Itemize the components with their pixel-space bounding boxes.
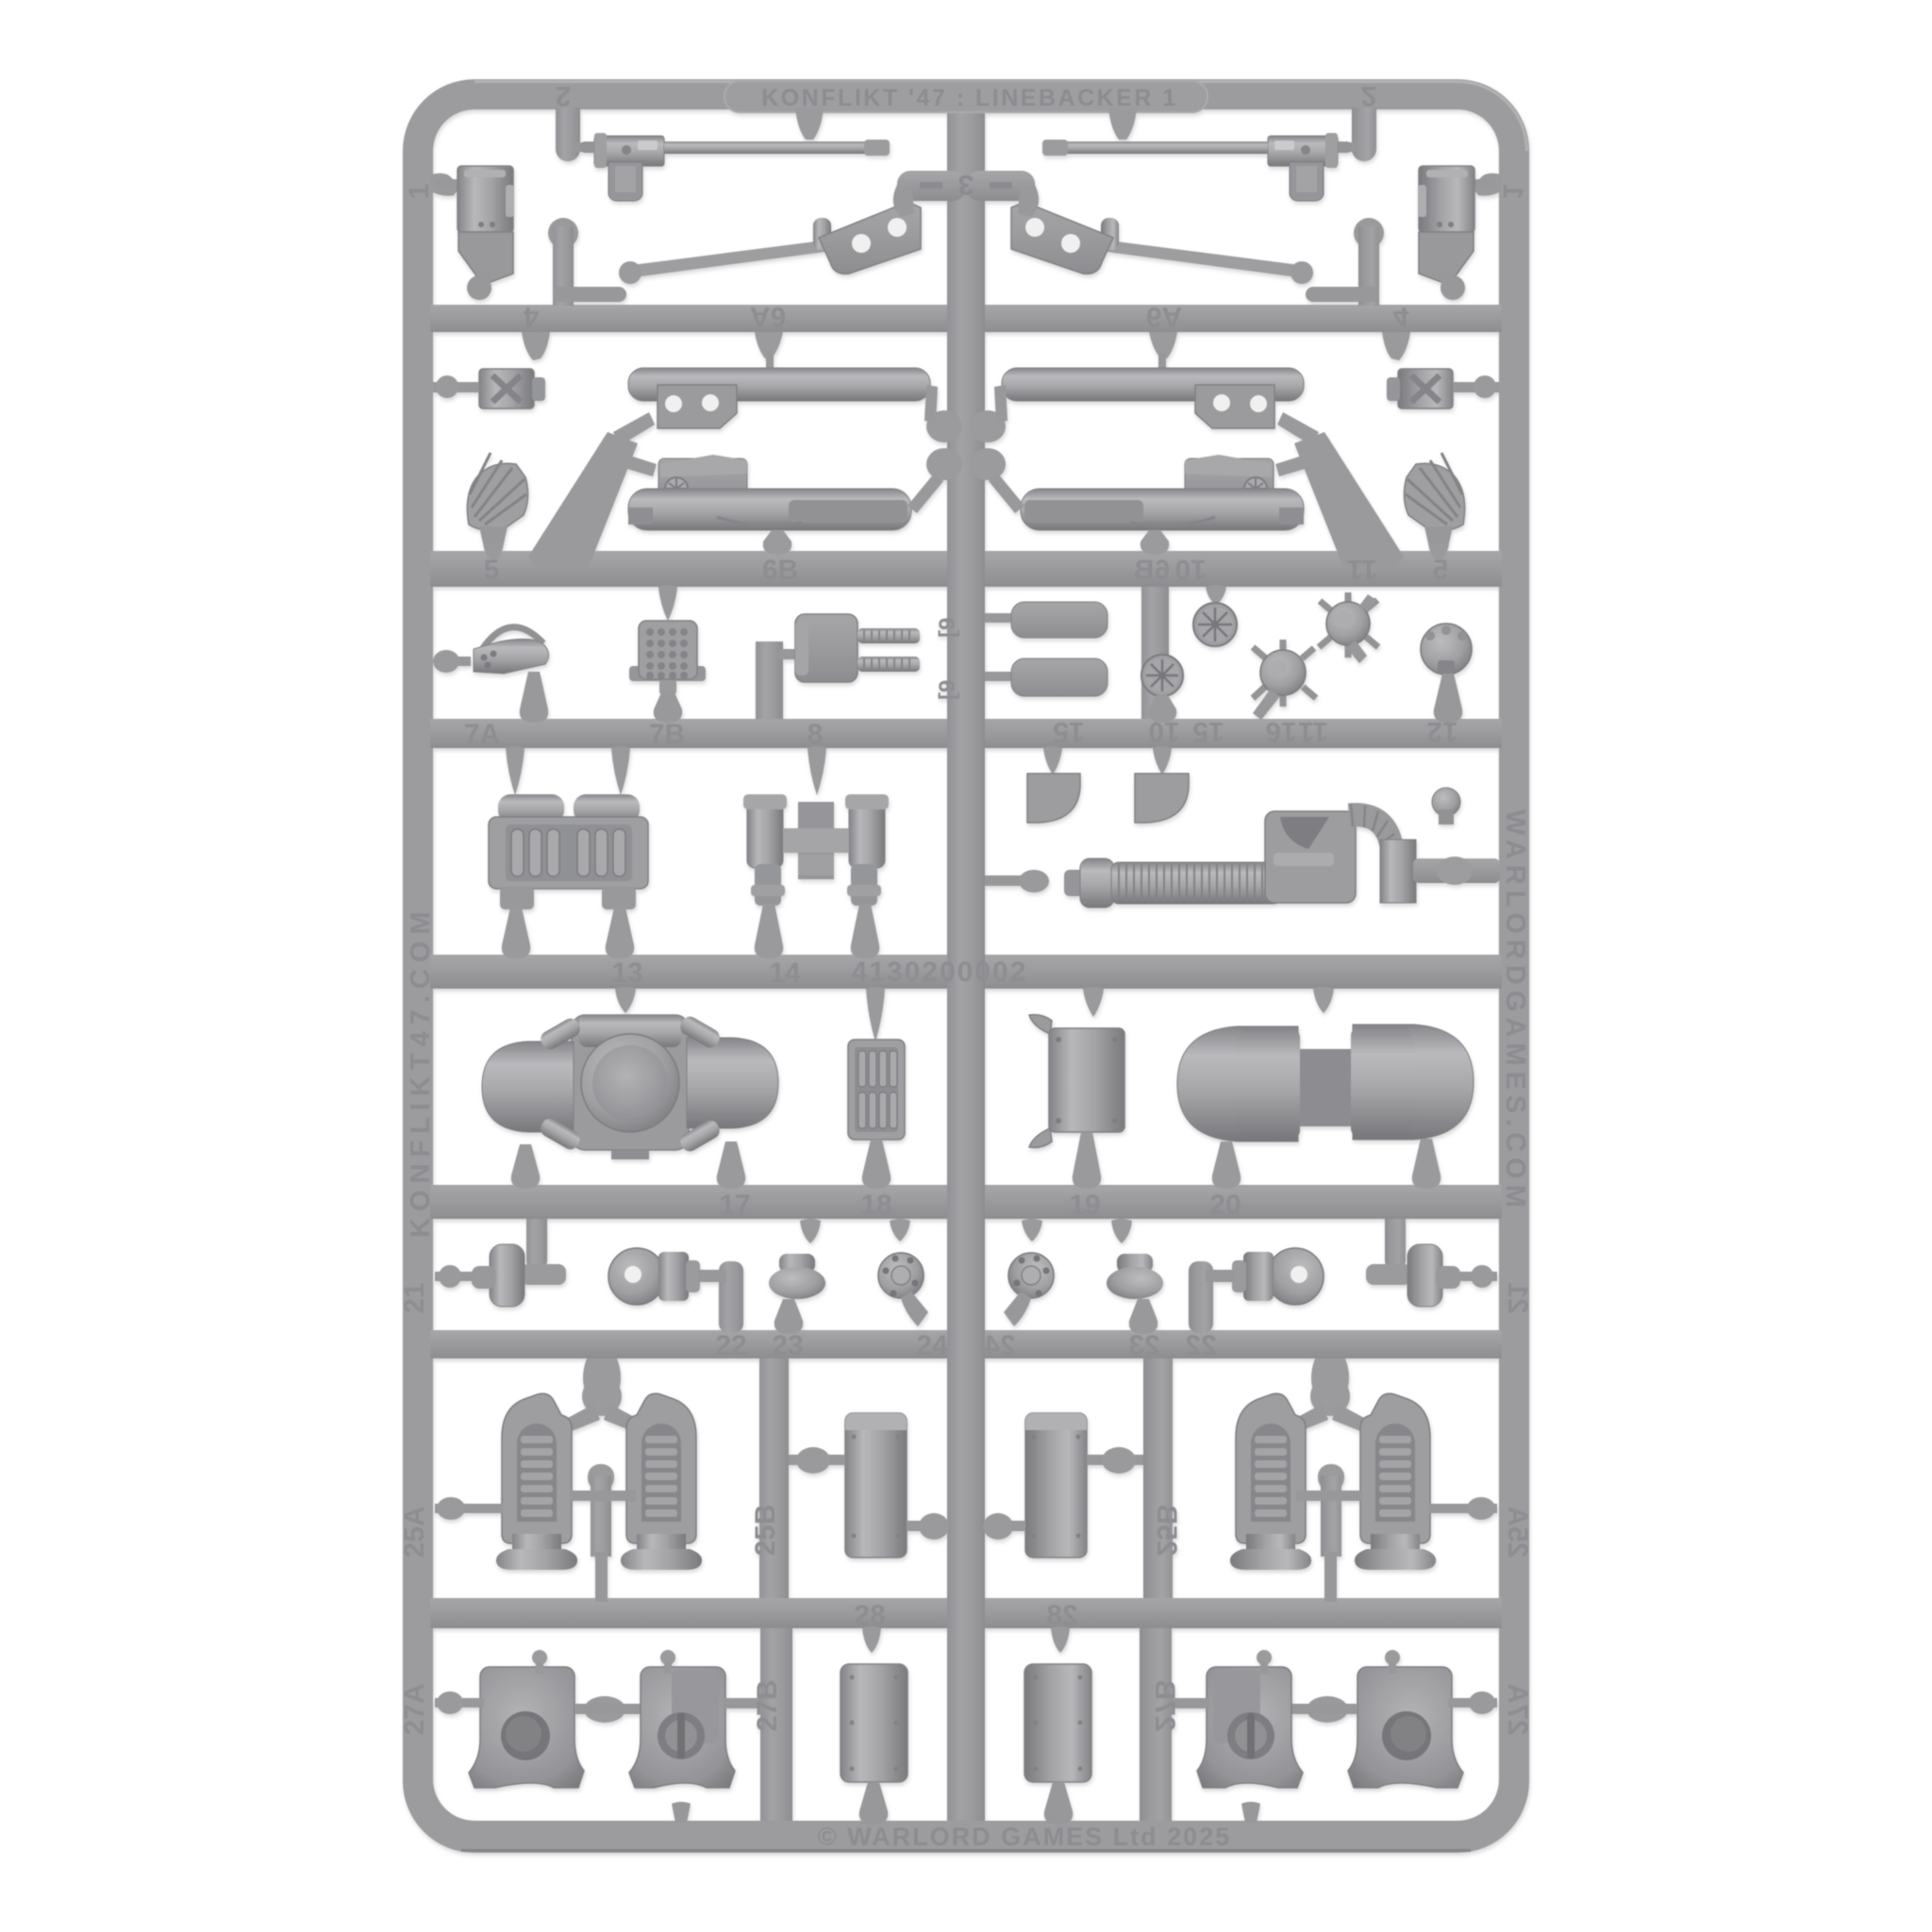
- svg-text:5: 5: [484, 555, 500, 586]
- svg-text:© WARLORD GAMES Ltd 2025: © WARLORD GAMES Ltd 2025: [818, 1823, 1231, 1851]
- svg-text:7A: 7A: [464, 719, 500, 750]
- svg-text:4: 4: [523, 301, 539, 332]
- svg-text:27A: 27A: [399, 1683, 430, 1735]
- svg-text:24: 24: [916, 1330, 948, 1361]
- svg-text:15: 15: [1192, 716, 1224, 747]
- svg-text:1: 1: [404, 184, 435, 200]
- svg-text:17: 17: [719, 1190, 750, 1221]
- svg-text:3: 3: [958, 169, 974, 200]
- svg-text:23: 23: [772, 1330, 803, 1361]
- svg-text:19: 19: [1069, 1190, 1100, 1221]
- svg-text:14: 14: [769, 958, 801, 989]
- svg-text:WARLORDGAMES.COM: WARLORDGAMES.COM: [1500, 809, 1530, 1213]
- svg-text:2: 2: [556, 80, 572, 111]
- svg-text:18: 18: [860, 1190, 891, 1221]
- svg-text:10: 10: [1148, 716, 1179, 747]
- svg-text:13: 13: [611, 958, 642, 989]
- svg-text:KONFLIKT '47 : LINEBACKER 1: KONFLIKT '47 : LINEBACKER 1: [761, 85, 1178, 111]
- svg-text:10: 10: [1174, 554, 1206, 585]
- svg-text:21: 21: [399, 1282, 430, 1313]
- svg-text:7B: 7B: [649, 719, 685, 750]
- svg-text:22: 22: [715, 1330, 746, 1361]
- svg-text:4130200002: 4130200002: [852, 957, 1028, 988]
- svg-text:12: 12: [1426, 716, 1457, 747]
- svg-text:6B: 6B: [762, 555, 798, 586]
- svg-text:8: 8: [808, 719, 824, 750]
- svg-text:[9: [9: [935, 618, 960, 638]
- svg-text:11: 11: [1298, 716, 1328, 747]
- svg-text:6A: 6A: [750, 301, 786, 332]
- svg-text:25B: 25B: [750, 1504, 781, 1556]
- svg-text:16: 16: [1265, 716, 1296, 747]
- svg-text:KONFLIKT47.COM: KONFLIKT47.COM: [406, 905, 436, 1238]
- svg-text:20: 20: [1209, 1190, 1241, 1221]
- svg-text:28: 28: [854, 1600, 885, 1631]
- svg-text:15: 15: [1053, 716, 1084, 747]
- svg-text:25A: 25A: [399, 1506, 430, 1557]
- svg-text:[9: [9: [935, 680, 960, 700]
- svg-text:27B: 27B: [752, 1679, 783, 1731]
- svg-text:11: 11: [1347, 554, 1377, 585]
